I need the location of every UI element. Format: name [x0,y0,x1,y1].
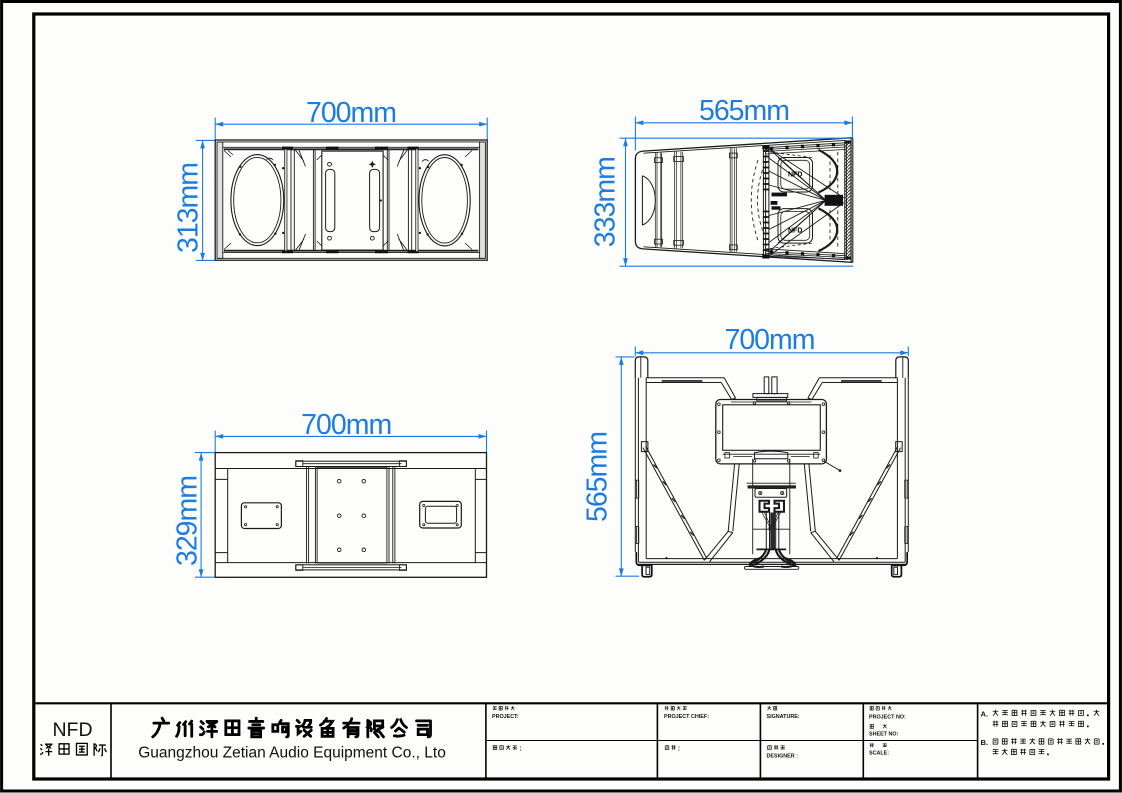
svg-text:565mm: 565mm [699,95,789,127]
svg-text:Guangzhou Zetian Audio Equipme: Guangzhou Zetian Audio Equipment Co., Lt… [138,745,446,762]
svg-text::: : [678,746,680,753]
svg-text:SIGNATURE:: SIGNATURE: [767,714,800,720]
svg-text:NFD: NFD [788,171,802,178]
svg-text:700mm: 700mm [306,97,396,129]
svg-text:PROJECT CHIEF:: PROJECT CHIEF: [664,714,709,720]
svg-text:NFD: NFD [788,228,802,235]
svg-text:B.: B. [981,738,989,747]
svg-text:DESIGNER :: DESIGNER : [767,754,799,760]
svg-text:PROJECT NO:: PROJECT NO: [869,715,906,721]
svg-text:SHEET NO:: SHEET NO: [869,732,899,738]
svg-text:PROJECT:: PROJECT: [492,714,519,720]
svg-text:700mm: 700mm [301,409,391,441]
svg-text:NFD: NFD [52,719,92,741]
svg-text::: : [520,746,522,753]
svg-text:329mm: 329mm [172,476,204,566]
svg-text:SCALE:: SCALE: [869,751,889,757]
svg-text:565mm: 565mm [582,432,614,522]
svg-text:333mm: 333mm [590,157,622,247]
svg-text:A.: A. [981,709,989,718]
svg-text:313mm: 313mm [173,163,205,253]
svg-text:700mm: 700mm [724,324,814,356]
